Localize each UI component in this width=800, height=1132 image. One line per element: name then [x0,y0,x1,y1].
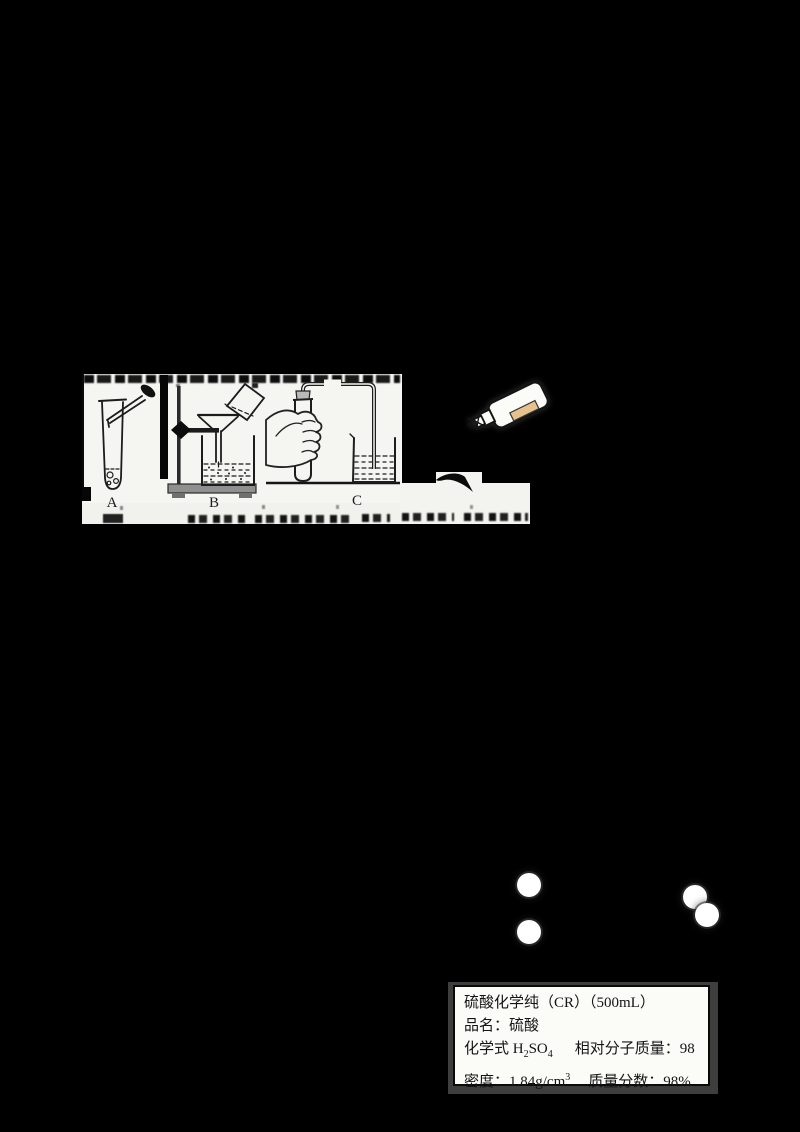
atom-circle [517,873,541,897]
reagent-label-density-row: 密度：1.84g/cm3质量分数：98% [464,1066,704,1094]
molecular-mass-text: 相对分子质量：98 [575,1041,695,1057]
reagent-label-frame: 硫酸化学纯（CR）（500mL） 品名：硫酸 化学式 H2SO4相对分子质量：9… [448,982,718,1094]
atom-circle [683,885,707,909]
test-tube-with-dropper-icon [99,382,158,489]
density-text: 密度：1.84g/cm [464,1074,565,1090]
formula-text: 化学式 H [464,1041,524,1057]
atom-circle [517,920,541,944]
molecule-diagram [0,0,800,1132]
reagent-label-box: 硫酸化学纯（CR）（500mL） 品名：硫酸 化学式 H2SO4相对分子质量：9… [453,985,710,1086]
reference-arrow-icon [436,474,473,492]
filtration-funnel-stand-icon [168,384,264,498]
reagent-bottle-icon [468,378,572,442]
formula-text: SO [529,1041,548,1057]
apparatus-label-c: C [347,493,367,510]
apparatus-label-a: A [102,495,122,512]
apparatus-label-b: B [204,495,224,512]
reagent-label-formula-row: 化学式 H2SO4相对分子质量：98 [464,1038,704,1066]
atom-circle [695,903,719,927]
hand-warming-test-tube-airtightness-icon [266,380,400,484]
scanned-exam-page: A B C 硫酸化学纯（CR）（500mL） 品名：硫酸 化学式 H2SO4相对… [0,0,800,1132]
reagent-label-product-name: 品名：硫酸 [464,1015,704,1038]
reagent-label-title: 硫酸化学纯（CR）（500mL） [464,992,704,1015]
formula-subscript: 4 [548,1049,553,1060]
apparatus-figure [82,374,530,524]
density-superscript: 3 [565,1072,570,1083]
mass-fraction-text: 质量分数：98% [588,1074,691,1090]
